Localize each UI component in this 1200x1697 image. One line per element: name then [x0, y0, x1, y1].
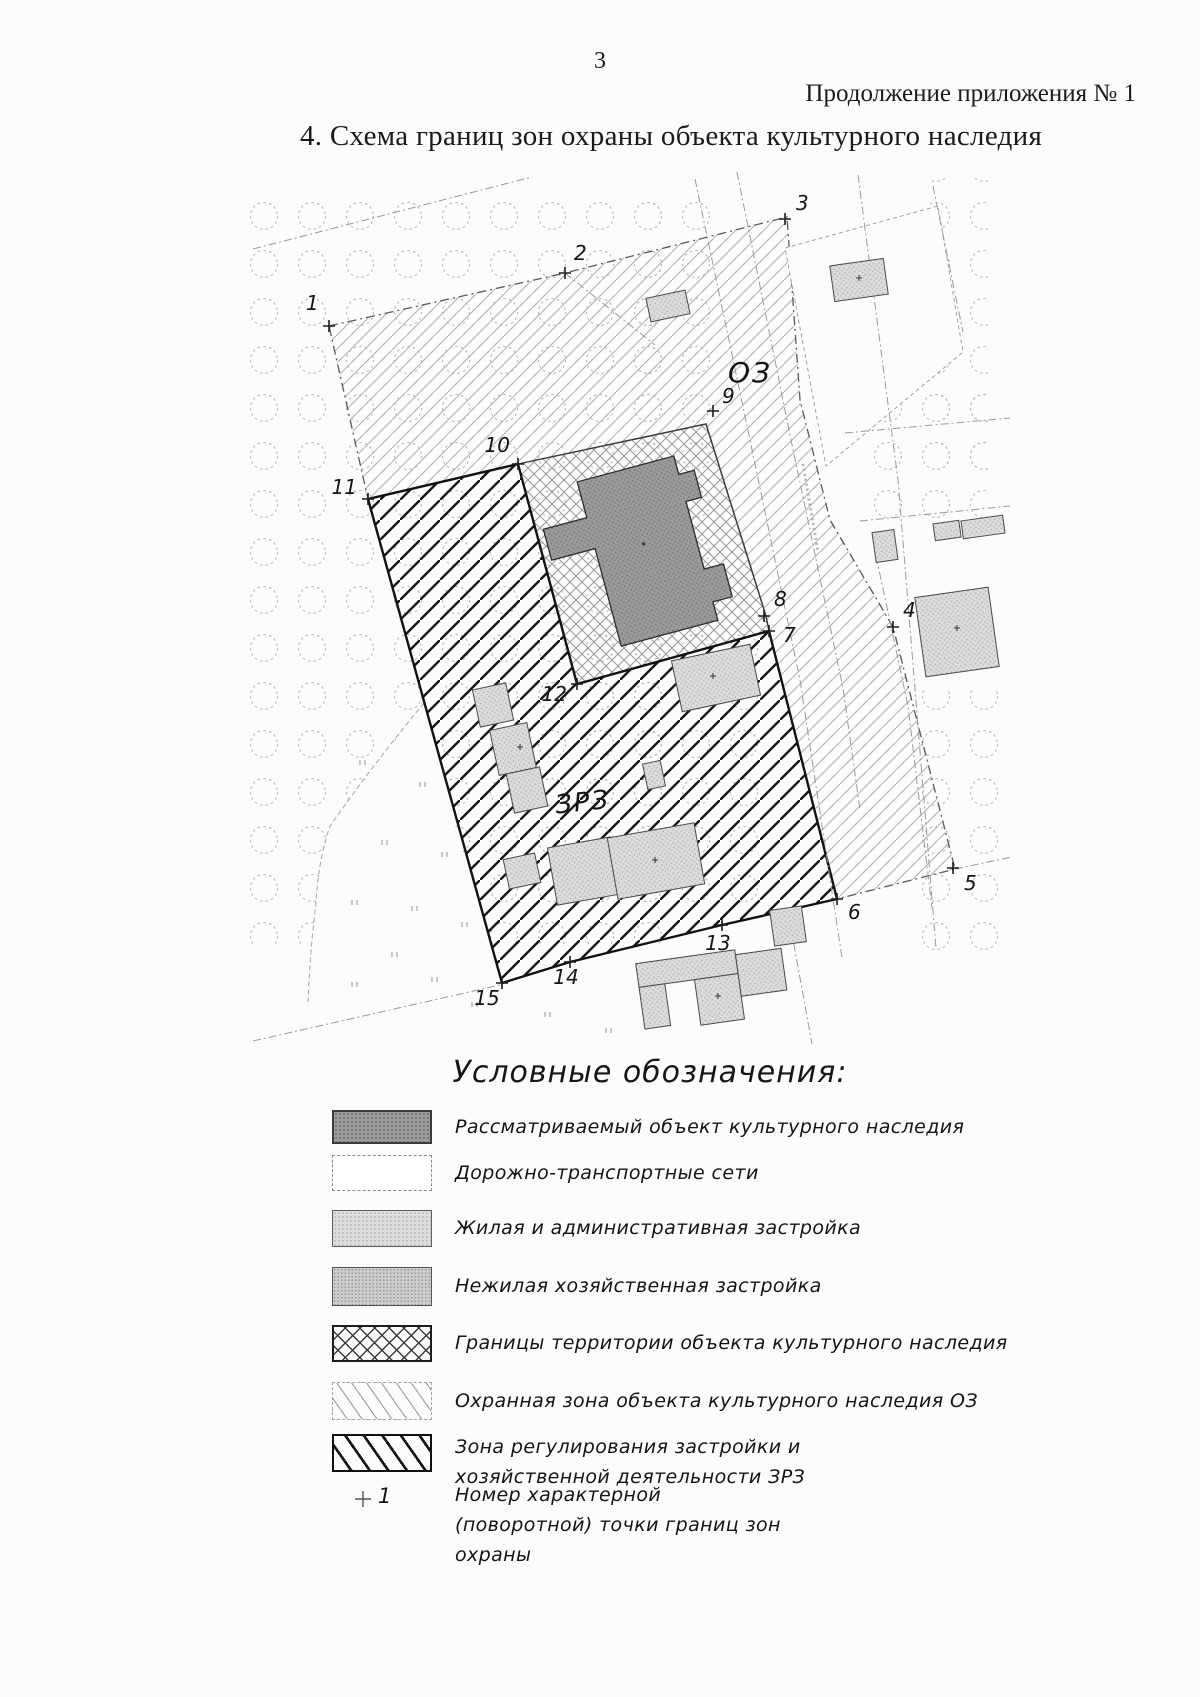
point-label: 7 — [783, 623, 796, 647]
legend-swatch-oz — [332, 1382, 432, 1420]
turning-point-marker-icon — [352, 1488, 374, 1510]
point-label: 4 — [903, 598, 916, 622]
legend-swatch-nonresidential — [332, 1267, 432, 1306]
legend-swatch-object — [332, 1110, 432, 1144]
legend-label: Дорожно-транспортные сети — [455, 1155, 759, 1191]
zone-label-zrz: ЗРЗ — [554, 785, 612, 821]
zone-label-oz: ОЗ — [728, 356, 772, 389]
point-label: 8 — [774, 587, 787, 611]
point-label: 2 — [574, 241, 587, 265]
point-label: 12 — [542, 682, 567, 706]
legend-swatch-zrz — [332, 1434, 432, 1472]
point-label: 14 — [553, 965, 578, 989]
point-label: 6 — [848, 900, 861, 924]
legend-title: Условные обозначения: — [100, 1055, 1200, 1090]
section-title: 4. Схема границ зон охраны объекта культ… — [300, 120, 1042, 153]
turning-point-marker-number: 1 — [378, 1484, 391, 1508]
legend-swatch-residential — [332, 1210, 432, 1247]
appendix-continuation-note: Продолжение приложения № 1 — [805, 80, 1136, 108]
legend-label: Границы территории объекта культурного н… — [455, 1325, 1008, 1362]
point-label: 15 — [474, 986, 499, 1010]
point-label: 1 — [306, 291, 319, 315]
page-number: 3 — [0, 48, 1200, 75]
legend-swatch-territory — [332, 1325, 432, 1362]
point-label: 11 — [332, 475, 357, 499]
point-label: 5 — [964, 871, 977, 895]
turning-point-marker-label: Номер характерной (поворотной) точки гра… — [455, 1480, 795, 1570]
legend-label: Рассматриваемый объект культурного насле… — [455, 1110, 964, 1144]
point-label: 3 — [796, 191, 809, 215]
legend-swatch-roads — [332, 1155, 432, 1191]
legend-label: Охранная зона объекта культурного наслед… — [455, 1382, 978, 1420]
document-page: 3 Продолжение приложения № 1 4. Схема гр… — [0, 0, 1200, 1697]
legend-label: Жилая и административная застройка — [455, 1210, 861, 1247]
legend-label: Нежилая хозяйственная застройка — [455, 1267, 822, 1306]
map-schema-container: 1 2 3 4 5 6 7 8 9 10 11 12 13 14 15 ОЗ З… — [230, 165, 1020, 1055]
point-label: 13 — [705, 931, 730, 955]
map-schema: 1 2 3 4 5 6 7 8 9 10 11 12 13 14 15 ОЗ З… — [230, 165, 1020, 1055]
point-label: 10 — [485, 433, 510, 457]
